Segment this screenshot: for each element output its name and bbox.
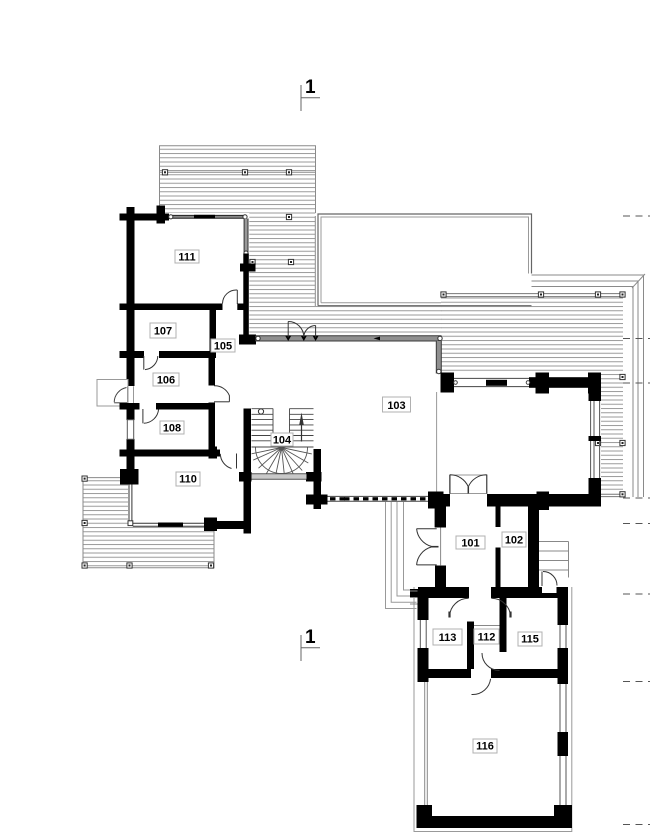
svg-text:1: 1: [305, 627, 316, 648]
svg-text:110: 110: [179, 474, 197, 486]
svg-text:115: 115: [521, 634, 539, 646]
svg-text:103: 103: [387, 400, 405, 412]
svg-text:113: 113: [439, 632, 457, 644]
svg-text:1: 1: [305, 77, 316, 98]
svg-text:104: 104: [273, 435, 292, 447]
svg-text:105: 105: [214, 341, 232, 353]
svg-text:102: 102: [505, 535, 523, 547]
svg-text:106: 106: [157, 375, 175, 387]
svg-text:101: 101: [461, 538, 479, 550]
svg-text:116: 116: [476, 741, 494, 753]
svg-text:112: 112: [478, 632, 496, 644]
svg-text:107: 107: [154, 326, 172, 338]
svg-text:108: 108: [163, 423, 181, 435]
svg-text:111: 111: [178, 252, 195, 264]
